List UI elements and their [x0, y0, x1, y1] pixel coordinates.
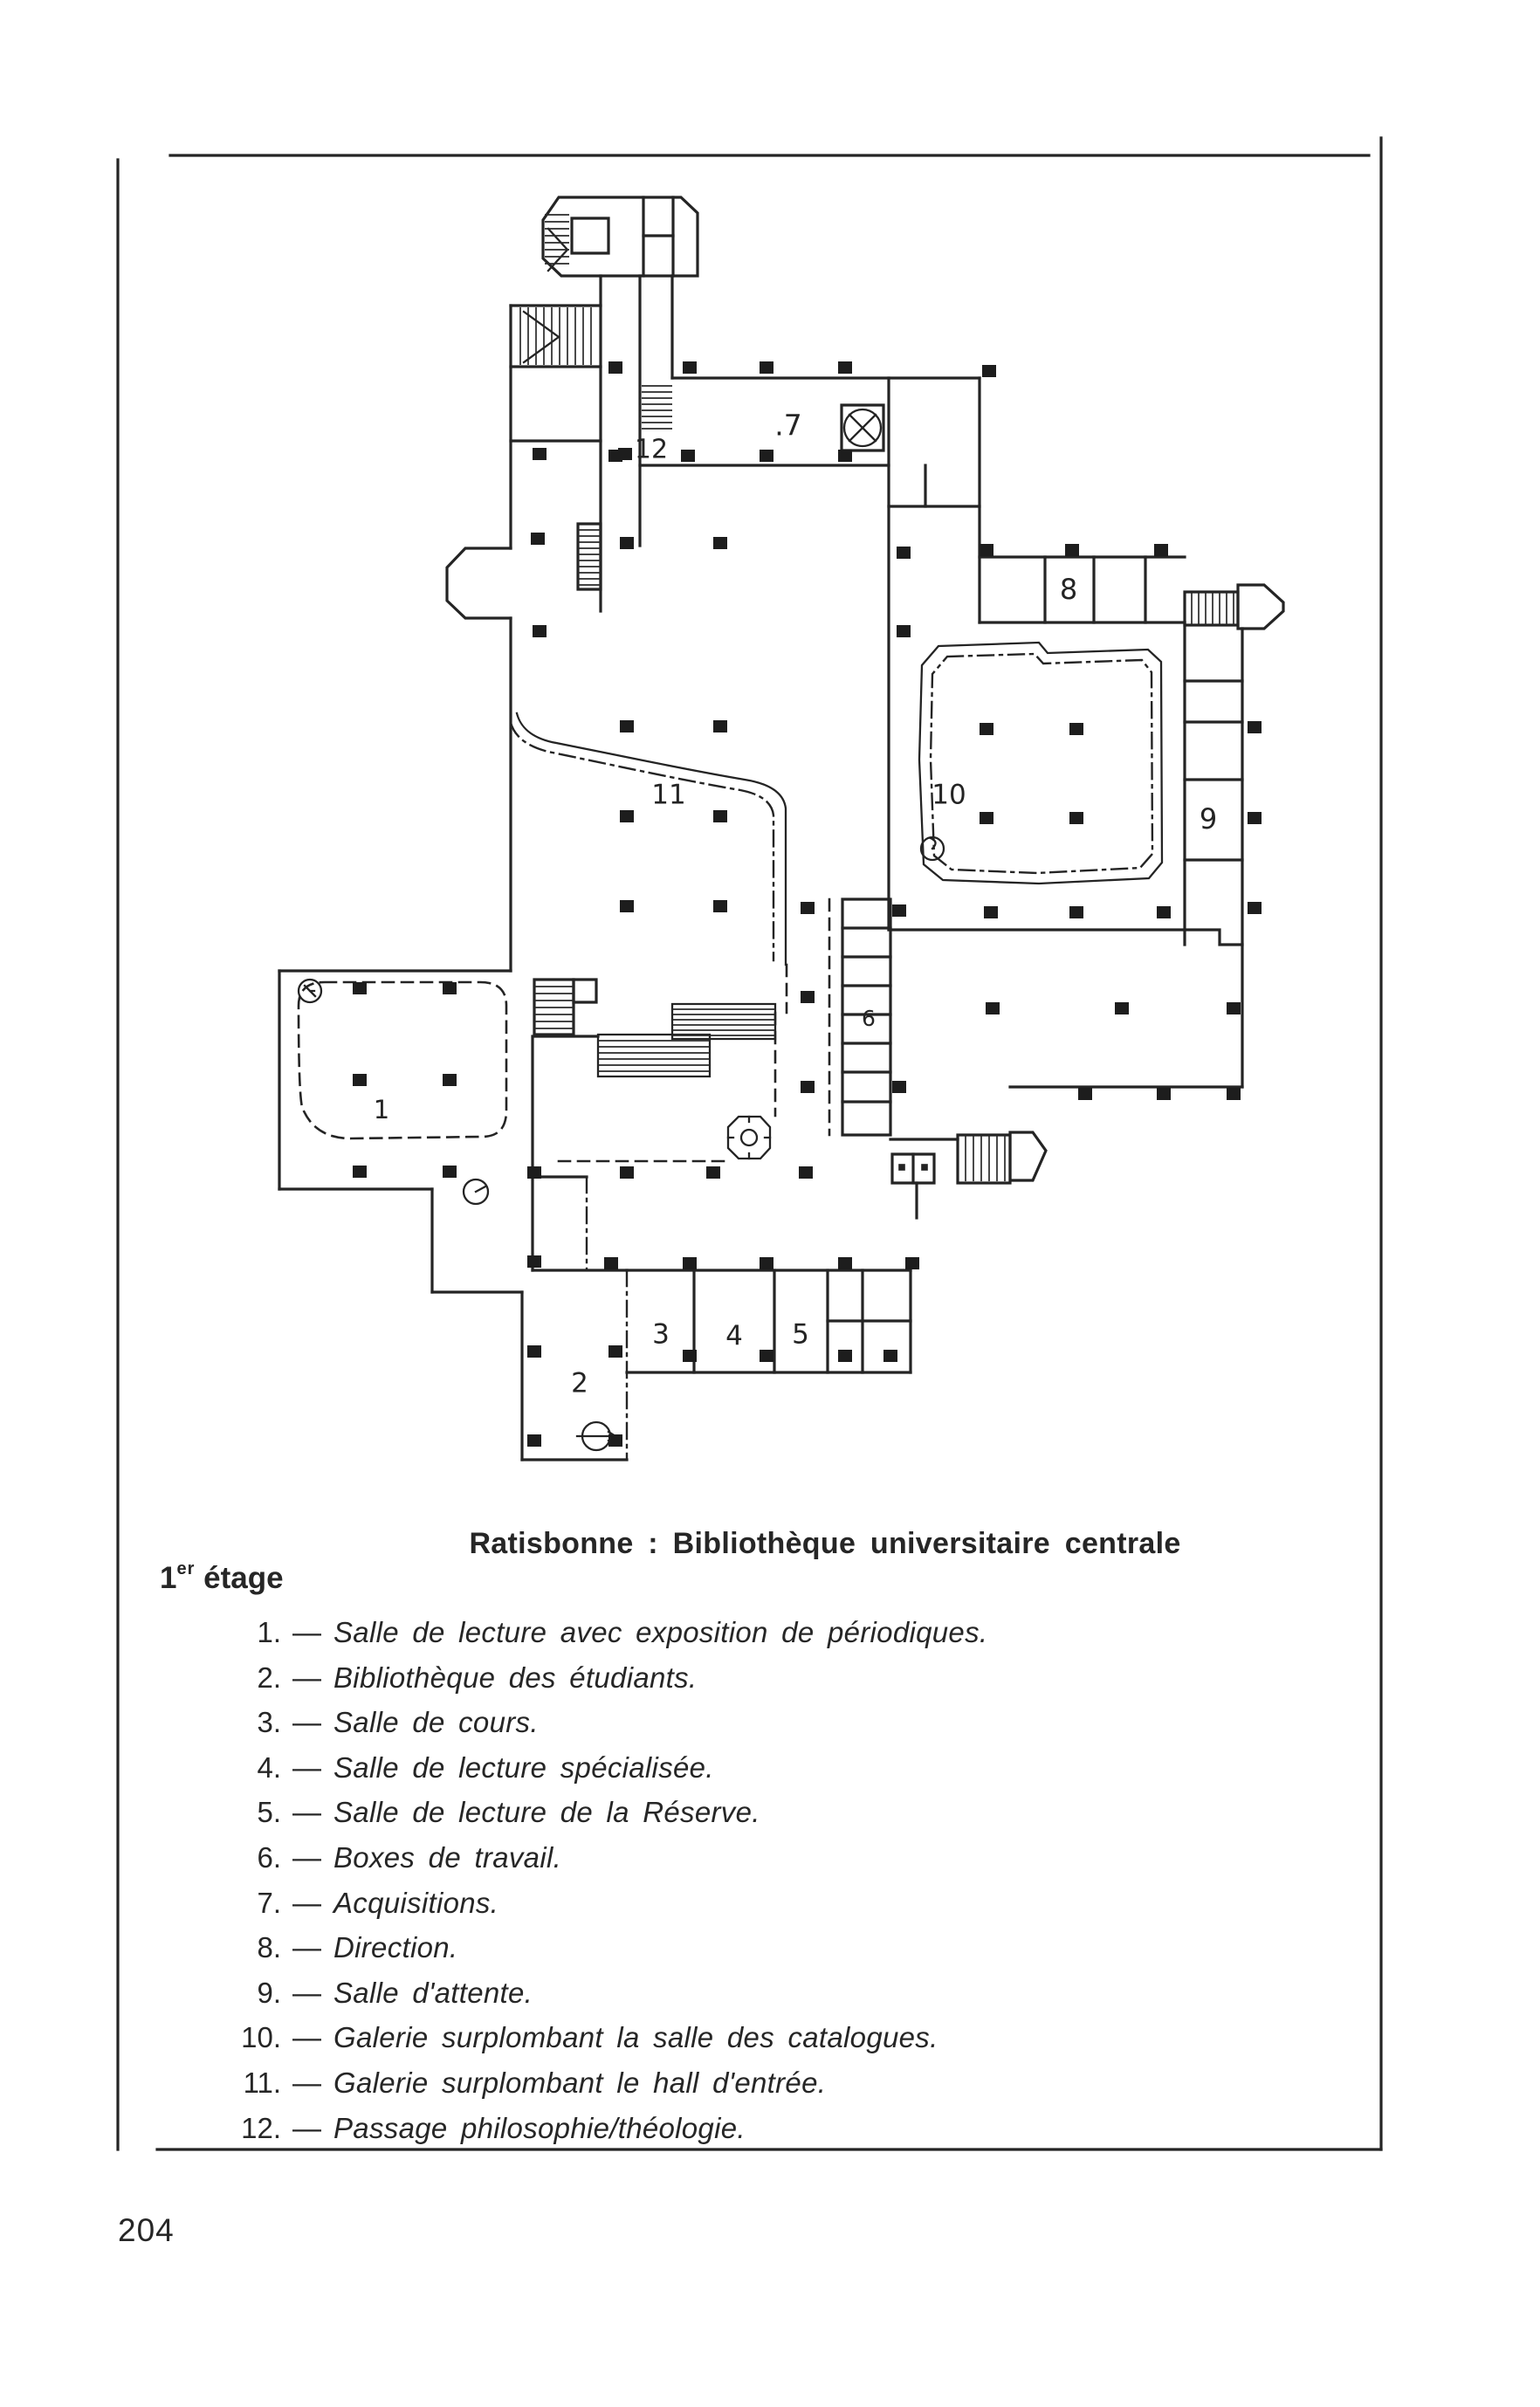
column-marker	[1157, 1088, 1171, 1100]
column-marker	[713, 900, 727, 912]
room-number-label: 11	[651, 780, 685, 811]
legend-item: 6.—Boxes de travail.	[208, 1841, 1238, 1887]
room-number-label: 6	[862, 1006, 876, 1031]
column-marker	[527, 1434, 541, 1447]
legend-item: 9.—Salle d'attente.	[208, 1977, 1238, 2022]
legend-list: 1.—Salle de lecture avec exposition de p…	[208, 1616, 1238, 2156]
pillar-icon	[299, 980, 321, 1002]
column-marker	[706, 1166, 720, 1179]
stair-icon	[672, 1009, 775, 1035]
stair-icon	[966, 1135, 1005, 1181]
column-marker	[801, 991, 815, 1003]
column-marker	[353, 982, 367, 994]
column-marker	[980, 544, 993, 556]
column-marker	[883, 1350, 897, 1362]
column-marker	[533, 625, 547, 637]
column-marker	[760, 1257, 773, 1269]
column-marker	[713, 810, 727, 822]
column-marker	[683, 1350, 697, 1362]
column-marker	[533, 448, 547, 460]
room-number-label: 10	[932, 780, 966, 811]
legend-item: 7.—Acquisitions.	[208, 1887, 1238, 1932]
column-marker	[986, 1002, 1000, 1014]
column-marker	[1227, 1088, 1241, 1100]
column-marker	[1248, 721, 1262, 733]
column-marker	[683, 1257, 697, 1269]
column-marker	[982, 365, 996, 377]
column-marker	[760, 1350, 773, 1362]
legend-item: 12.—Passage philosophie/théologie.	[208, 2112, 1238, 2157]
column-marker	[713, 537, 727, 549]
figure-title: Ratisbonne : Bibliothèque universitaire …	[332, 1527, 1318, 1561]
column-marker	[620, 720, 634, 732]
legend-item: 1.—Salle de lecture avec exposition de p…	[208, 1616, 1238, 1661]
column-marker	[713, 720, 727, 732]
column-marker	[801, 902, 815, 914]
column-marker	[838, 361, 852, 374]
floor-label: 1er étage	[160, 1561, 284, 1596]
column-markers	[353, 361, 1262, 1447]
column-marker	[531, 533, 545, 545]
column-marker	[799, 1166, 813, 1179]
page-number: 204	[118, 2212, 175, 2249]
legend-item: 2.—Bibliothèque des étudiants.	[208, 1661, 1238, 1707]
room-number-label: 5	[792, 1319, 809, 1351]
column-marker	[801, 1081, 815, 1093]
plan-symbols	[299, 409, 944, 1450]
column-marker	[838, 1257, 852, 1269]
legend-item: 3.—Salle de cours.	[208, 1706, 1238, 1751]
column-marker	[905, 1257, 919, 1269]
room-number-label: 8	[1060, 573, 1077, 606]
column-marker	[1069, 906, 1083, 918]
column-marker	[618, 448, 632, 460]
column-marker	[1069, 812, 1083, 824]
column-marker	[604, 1257, 618, 1269]
column-marker	[838, 450, 852, 462]
column-marker	[838, 1350, 852, 1362]
column-marker	[620, 900, 634, 912]
column-marker	[1227, 1002, 1241, 1014]
column-marker	[620, 1166, 634, 1179]
column-marker	[527, 1345, 541, 1358]
column-marker	[984, 906, 998, 918]
column-marker	[892, 904, 906, 917]
column-marker	[527, 1255, 541, 1268]
floor-ordinal: er	[176, 1559, 195, 1578]
legend-item: 10.—Galerie surplombant la salle des cat…	[208, 2021, 1238, 2067]
column-marker	[1157, 906, 1171, 918]
column-marker	[1248, 902, 1262, 914]
spiral-stair-icon	[921, 837, 944, 860]
plan-gallery-edges	[517, 229, 1162, 1076]
column-marker	[443, 1074, 457, 1086]
stair-icon	[1192, 592, 1234, 625]
column-marker	[1248, 812, 1262, 824]
room-number-label: 12	[635, 435, 668, 465]
column-marker	[980, 723, 993, 735]
column-marker	[683, 361, 697, 374]
clock-icon	[464, 1179, 488, 1204]
column-marker	[608, 1434, 622, 1447]
column-marker	[892, 1081, 906, 1093]
column-marker	[353, 1074, 367, 1086]
column-marker	[1069, 723, 1083, 735]
legend-item: 4.—Salle de lecture spécialisée.	[208, 1751, 1238, 1797]
plan-walls	[279, 197, 1283, 1460]
stair-icon	[642, 386, 672, 429]
column-marker	[681, 450, 695, 462]
room-number-label: 3	[652, 1319, 670, 1351]
floor-digit: 1	[160, 1561, 176, 1595]
scanned-book-page: { "page": { "number": "204" }, "figure":…	[0, 0, 1540, 2407]
elevator-icon	[844, 409, 881, 446]
legend-item: 5.—Salle de lecture de la Réserve.	[208, 1796, 1238, 1841]
column-ornament-icon	[728, 1117, 770, 1159]
column-marker	[608, 1345, 622, 1358]
column-marker	[897, 625, 911, 637]
column-marker	[1078, 1088, 1092, 1100]
stair-icon	[578, 530, 601, 585]
column-marker	[760, 361, 773, 374]
column-marker	[443, 1166, 457, 1178]
legend-item: 8.—Direction.	[208, 1931, 1238, 1977]
room-number-label: .7	[774, 409, 802, 443]
column-marker	[527, 1166, 541, 1179]
floor-word: étage	[203, 1561, 283, 1595]
stair-icon	[598, 1041, 710, 1071]
room-number-label: 4	[725, 1321, 743, 1352]
column-marker	[980, 812, 993, 824]
column-marker	[760, 450, 773, 462]
legend-item: 11.—Galerie surplombant le hall d'entrée…	[208, 2067, 1238, 2112]
room-number-label: 1	[374, 1095, 389, 1124]
room-number-label: 9	[1200, 802, 1217, 836]
column-marker	[620, 537, 634, 549]
column-marker	[897, 547, 911, 559]
room-number-label: 2	[571, 1368, 588, 1399]
column-marker	[1065, 544, 1079, 556]
column-marker	[1115, 1002, 1129, 1014]
stair-icon	[534, 987, 574, 1028]
column-marker	[1154, 544, 1168, 556]
column-marker	[620, 810, 634, 822]
column-marker	[353, 1166, 367, 1178]
column-marker	[608, 361, 622, 374]
column-marker	[443, 982, 457, 994]
stair-hatching	[520, 215, 1234, 1181]
